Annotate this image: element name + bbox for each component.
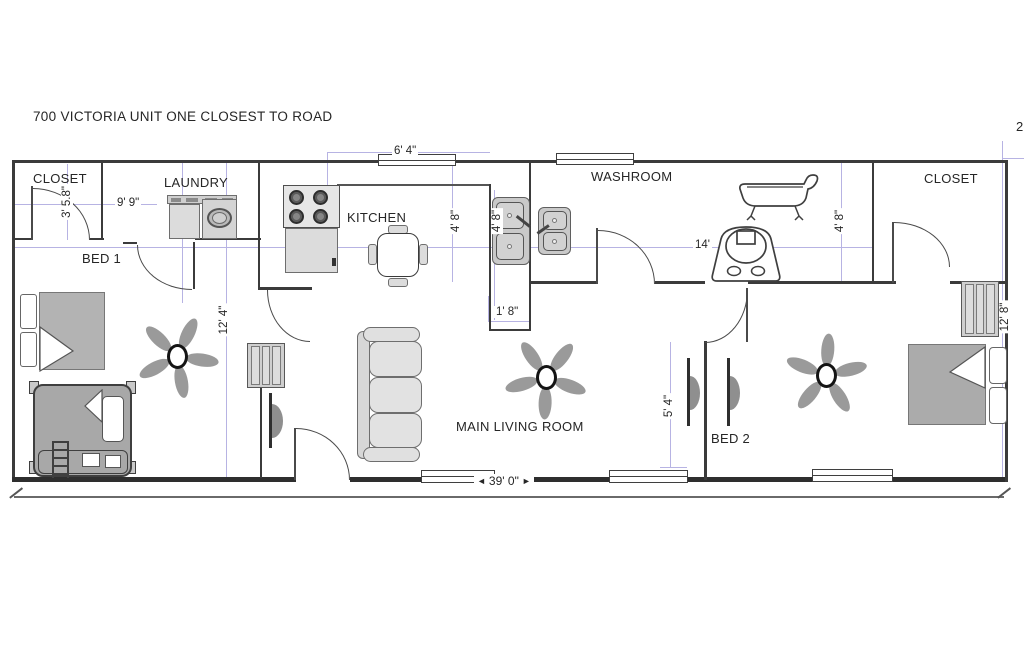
- wall-closet-left-bottom: [90, 238, 104, 240]
- sofa-cushion: [369, 413, 422, 448]
- wall-stub: [123, 242, 137, 244]
- window: [609, 470, 688, 483]
- dresser: [247, 343, 285, 388]
- room-label-closet-right: CLOSET: [924, 171, 978, 186]
- dim-sink-counter: 4' 8": [491, 208, 503, 234]
- dryer: [202, 199, 237, 239]
- pillow: [20, 332, 37, 367]
- room-label-bed1: BED 1: [82, 251, 121, 266]
- ceiling-fan: [504, 335, 588, 419]
- dim-washroom-depth: 4' 8": [834, 208, 846, 234]
- sofa-cushion: [369, 341, 422, 377]
- wall-counter-left: [489, 184, 491, 331]
- dimension-line: [1002, 158, 1024, 159]
- washer: [169, 204, 200, 239]
- door-arc-bed2: [705, 290, 748, 343]
- room-label-laundry: LAUNDRY: [164, 175, 228, 190]
- bed-fold: [84, 389, 104, 425]
- wall-counter-bottom: [489, 329, 531, 331]
- door-arc-washroom: [598, 230, 655, 284]
- chair: [368, 244, 377, 265]
- ceiling-fan: [784, 333, 868, 417]
- door-arc-kitchen: [267, 290, 310, 342]
- overall-measure-line: [14, 496, 1004, 498]
- pillow: [989, 387, 1007, 424]
- floor-plan: 700 VICTORIA UNIT ONE CLOSEST TO ROAD 2: [0, 0, 1024, 650]
- room-label-closet-left: CLOSET: [33, 171, 87, 186]
- dimension-line: [327, 152, 328, 185]
- stove: [283, 185, 340, 228]
- wall-kitchen-left: [258, 160, 260, 289]
- wall-left: [12, 160, 15, 481]
- pillow: [989, 347, 1007, 384]
- sofa-armrest: [363, 327, 420, 342]
- plan-title: 700 VICTORIA UNIT ONE CLOSEST TO ROAD: [33, 109, 332, 124]
- window: [812, 469, 893, 482]
- washroom-sink: [538, 207, 571, 255]
- wall-tv-mount: [690, 376, 700, 410]
- chair: [419, 244, 428, 265]
- wall-washroom-bottom: [655, 281, 705, 284]
- toilet: [707, 221, 785, 283]
- dim-washroom-width: 14': [693, 239, 712, 251]
- wall-bed2-divider: [704, 341, 707, 480]
- kitchen-counter: [285, 228, 338, 273]
- wall-closet-left-bottom: [12, 238, 32, 240]
- bathtub: [737, 172, 821, 222]
- wall-closet-left-divider: [101, 160, 103, 240]
- room-label-kitchen: KITCHEN: [347, 210, 406, 225]
- wall-bed1-divider: [260, 388, 262, 478]
- dresser: [961, 281, 999, 337]
- room-label-living: MAIN LIVING ROOM: [456, 419, 584, 434]
- dim-overall-width-value: 39' 0": [489, 474, 519, 488]
- bed-fold: [948, 346, 986, 390]
- dim-overall-width: ◄ 39' 0" ►: [474, 474, 534, 488]
- wall-closet-right-left: [872, 160, 874, 283]
- door-arc-closet-right: [894, 222, 950, 267]
- bed-fold: [39, 326, 75, 372]
- dim-bed2-wall: 5' 4": [663, 393, 675, 419]
- dim-arrow-right-icon: ►: [522, 474, 531, 488]
- dim-laundry-width: 9' 9": [115, 197, 141, 209]
- sofa-cushion: [369, 377, 422, 413]
- dim-closet-depth: 3' 5.8": [61, 184, 73, 220]
- wall-stub: [193, 242, 195, 289]
- measure-tick: [997, 487, 1011, 498]
- dim-counter-width: 1' 8": [494, 306, 520, 318]
- wall-tv-mount: [730, 376, 740, 410]
- room-label-bed2: BED 2: [711, 431, 750, 446]
- dim-kitchen-window: 6' 4": [392, 145, 418, 157]
- kitchen-counter-line: [337, 184, 490, 186]
- wall-tv-mount: [272, 404, 283, 438]
- dim-bed2-depth: 12' 8": [999, 301, 1011, 334]
- dimension-line: [488, 321, 531, 322]
- window: [556, 153, 634, 165]
- wall-washroom-bottom: [531, 281, 597, 284]
- sofa-armrest: [363, 447, 420, 462]
- pillow: [20, 294, 37, 329]
- ceiling-fan: [135, 314, 219, 398]
- dim-bed1-depth: 12' 4": [218, 304, 230, 337]
- page-marker: 2: [1016, 119, 1024, 134]
- pillow: [102, 396, 124, 442]
- dim-kitchen-depth: 4' 8": [450, 208, 462, 234]
- room-label-washroom: WASHROOM: [591, 169, 672, 184]
- door-arc-bed1: [137, 245, 192, 290]
- door-arc-entry: [296, 428, 350, 480]
- dimension-line: [660, 467, 687, 468]
- chair: [388, 278, 408, 287]
- dim-arrow-left-icon: ◄: [477, 474, 486, 488]
- bunk-ladder: [52, 441, 69, 478]
- wall-top: [12, 160, 1008, 163]
- dining-table: [377, 233, 419, 277]
